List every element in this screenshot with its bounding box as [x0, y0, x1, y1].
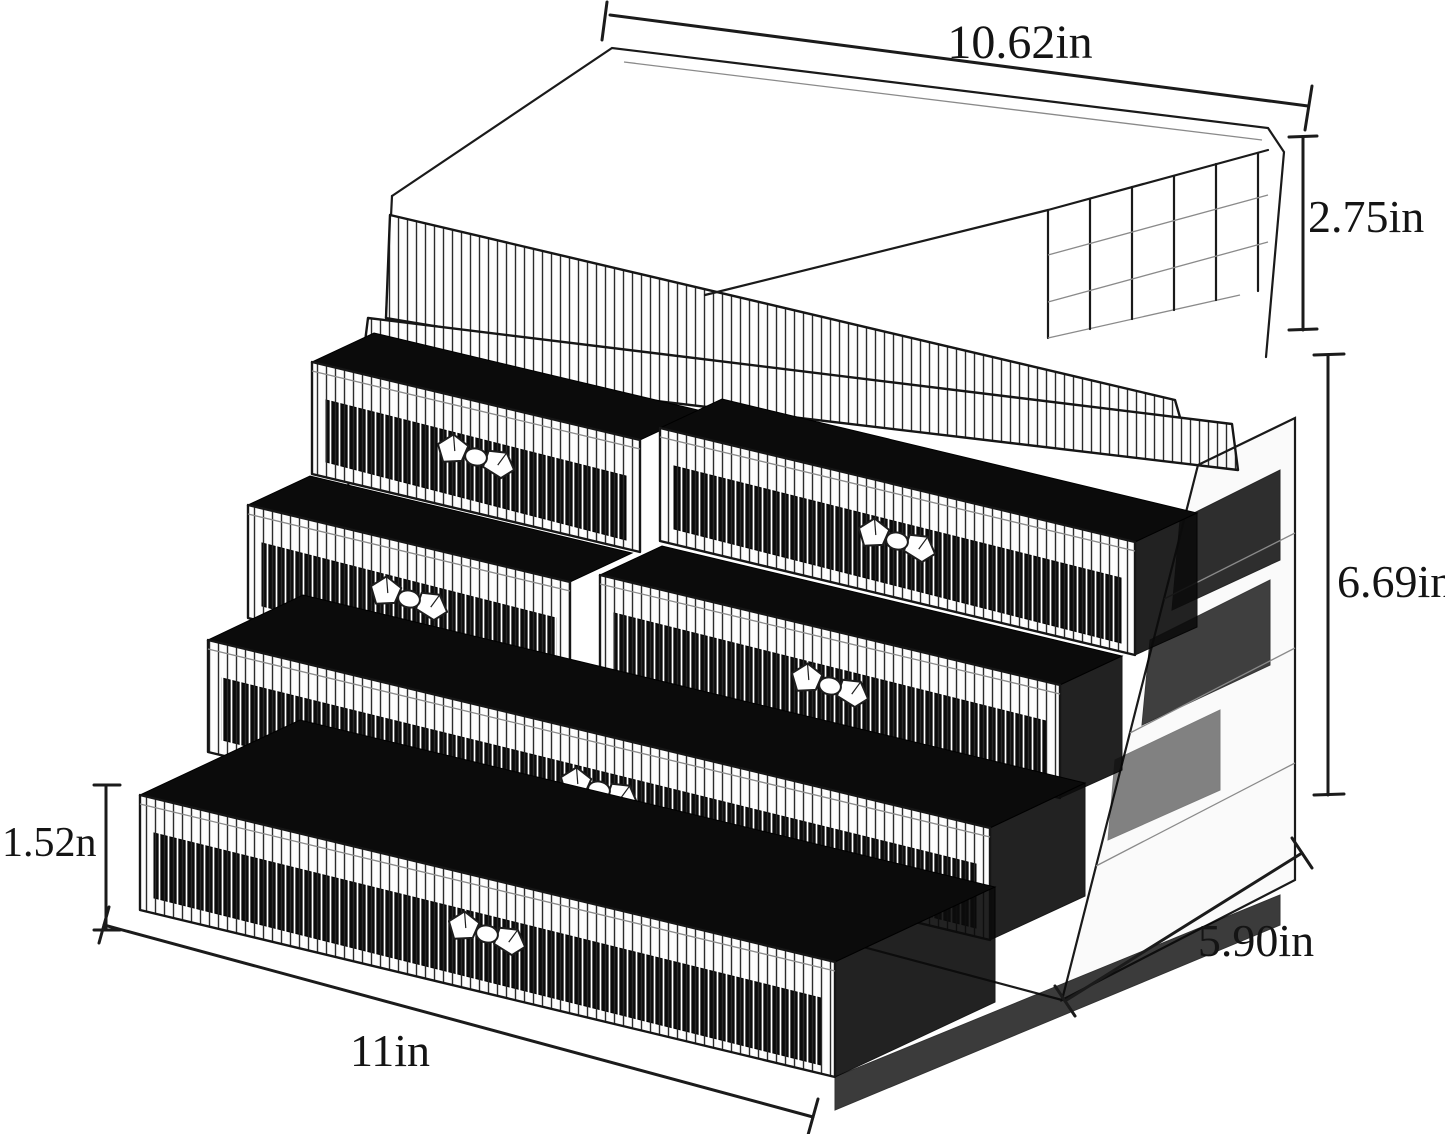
tick — [1314, 794, 1344, 795]
tray-back-wall-inner-edge — [624, 62, 1262, 140]
dimension-label-depth: 5.90in — [1198, 915, 1314, 966]
tick — [1305, 86, 1312, 130]
dimension-label-top-width: 10.62in — [947, 16, 1092, 69]
dimension-top-width: 10.62in — [602, 2, 1312, 130]
tick — [1289, 329, 1317, 330]
dimension-label-single-drawer-height: 1.52n — [2, 820, 97, 866]
lipstick-grid — [1048, 150, 1268, 338]
dimension-label-drawer-section-height: 6.69in — [1337, 556, 1445, 607]
dimension-label-bottom-width: 11in — [350, 1025, 430, 1076]
product-dimension-diagram: 10.62in 2.75in 6.69in 1.52n 11in 5.90in — [0, 0, 1445, 1134]
tick — [1289, 136, 1317, 137]
dimension-single-drawer-height: 1.52n — [2, 785, 120, 930]
tick — [602, 2, 607, 40]
tick — [1314, 354, 1344, 355]
dimension-top-section-height: 2.75in — [1289, 136, 1424, 330]
dimension-drawer-section-height: 6.69in — [1314, 354, 1445, 795]
dimension-label-top-section-height: 2.75in — [1308, 191, 1424, 242]
